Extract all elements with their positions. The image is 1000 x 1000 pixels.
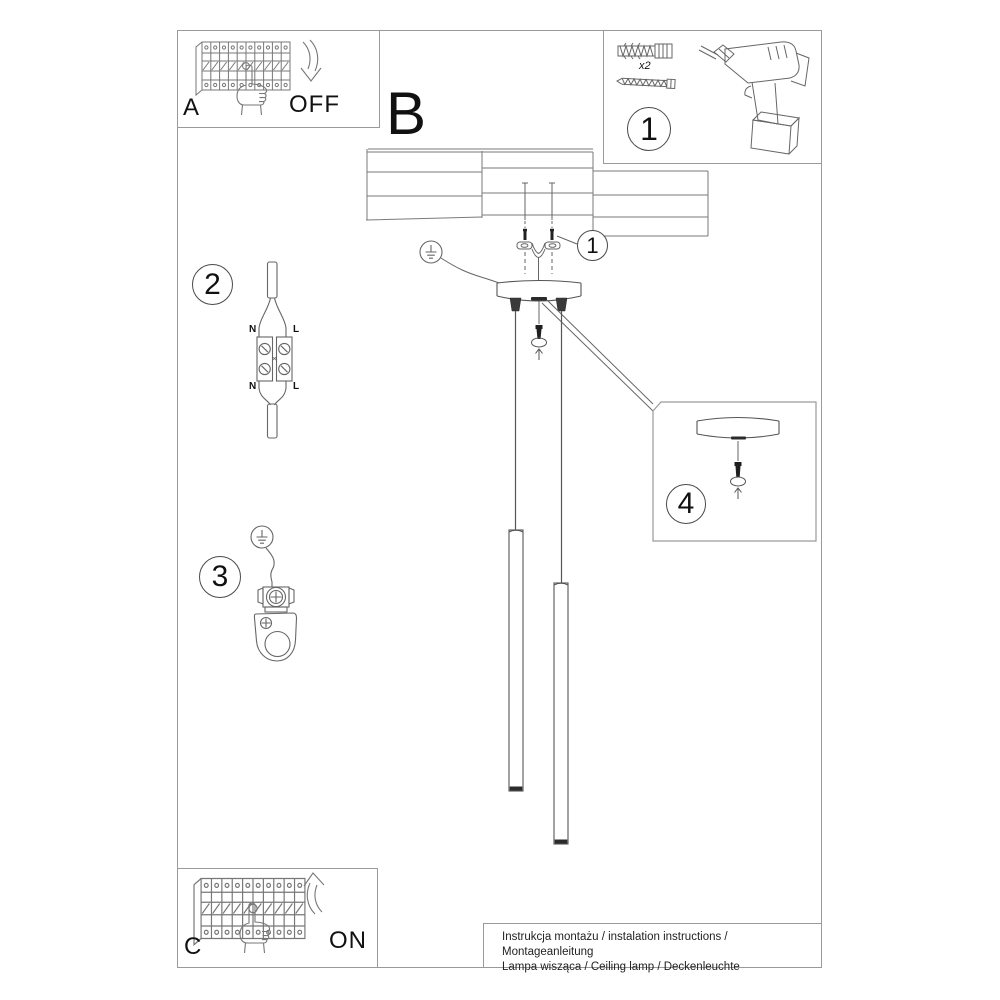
mounting-screw-icon — [617, 77, 675, 89]
breaker-panel-icon — [196, 42, 290, 95]
ground-connection-diagram — [251, 526, 297, 661]
step-2-badge: 2 — [192, 264, 233, 305]
ground-terminal-icon — [258, 587, 294, 612]
section-b-label: B — [386, 84, 426, 144]
line-art — [0, 0, 1000, 1000]
anchor-quantity-label: x2 — [639, 60, 651, 72]
footer-line-2: Lampa wisząca / Ceiling lamp / Deckenleu… — [502, 960, 821, 975]
bracket-callout-badge: 1 — [577, 230, 608, 261]
panel-a-label: A — [183, 94, 200, 122]
footer-line-1: Instrukcja montażu / instalation instruc… — [502, 930, 821, 960]
pointing-hand-icon — [240, 903, 270, 953]
ground-symbol-icon — [420, 241, 499, 283]
wire-label-l-top: L — [293, 324, 299, 335]
locking-screw-icon — [532, 301, 547, 347]
off-label: OFF — [289, 91, 340, 119]
wiring-diagram — [257, 262, 292, 438]
wire-label-n-bottom: N — [249, 381, 256, 392]
tools-step-badge: 1 — [627, 107, 671, 151]
curved-arrow-down-icon — [301, 40, 321, 81]
drill-icon — [699, 42, 809, 154]
ceiling-drawing — [366, 149, 708, 236]
detail-leader-lines — [542, 300, 653, 411]
ground-wire-icon — [266, 548, 274, 587]
wire-label-n-top: N — [249, 324, 256, 335]
wall-anchor-icon — [618, 43, 672, 59]
panel-c-label: C — [184, 933, 202, 961]
pendant-tube-right — [554, 583, 568, 844]
ceiling-plate-icon — [254, 613, 296, 661]
step-4-badge: 4 — [666, 484, 706, 524]
on-label: ON — [329, 927, 367, 955]
footer-box: Instrukcja montażu / instalation instruc… — [483, 923, 822, 968]
up-arrow-icon — [536, 349, 543, 360]
step-3-badge: 3 — [199, 556, 241, 598]
curved-arrow-up-icon — [304, 873, 324, 914]
mounting-bracket-icon — [517, 242, 560, 281]
canopy-icon — [497, 281, 581, 302]
pendant-tube-left — [509, 530, 523, 791]
wire-label-l-bottom: L — [293, 381, 299, 392]
instruction-sheet: A OFF B x2 C ON N L N L 1 1 2 3 4 Instru… — [0, 0, 1000, 1000]
callout-leader-line — [557, 236, 577, 244]
